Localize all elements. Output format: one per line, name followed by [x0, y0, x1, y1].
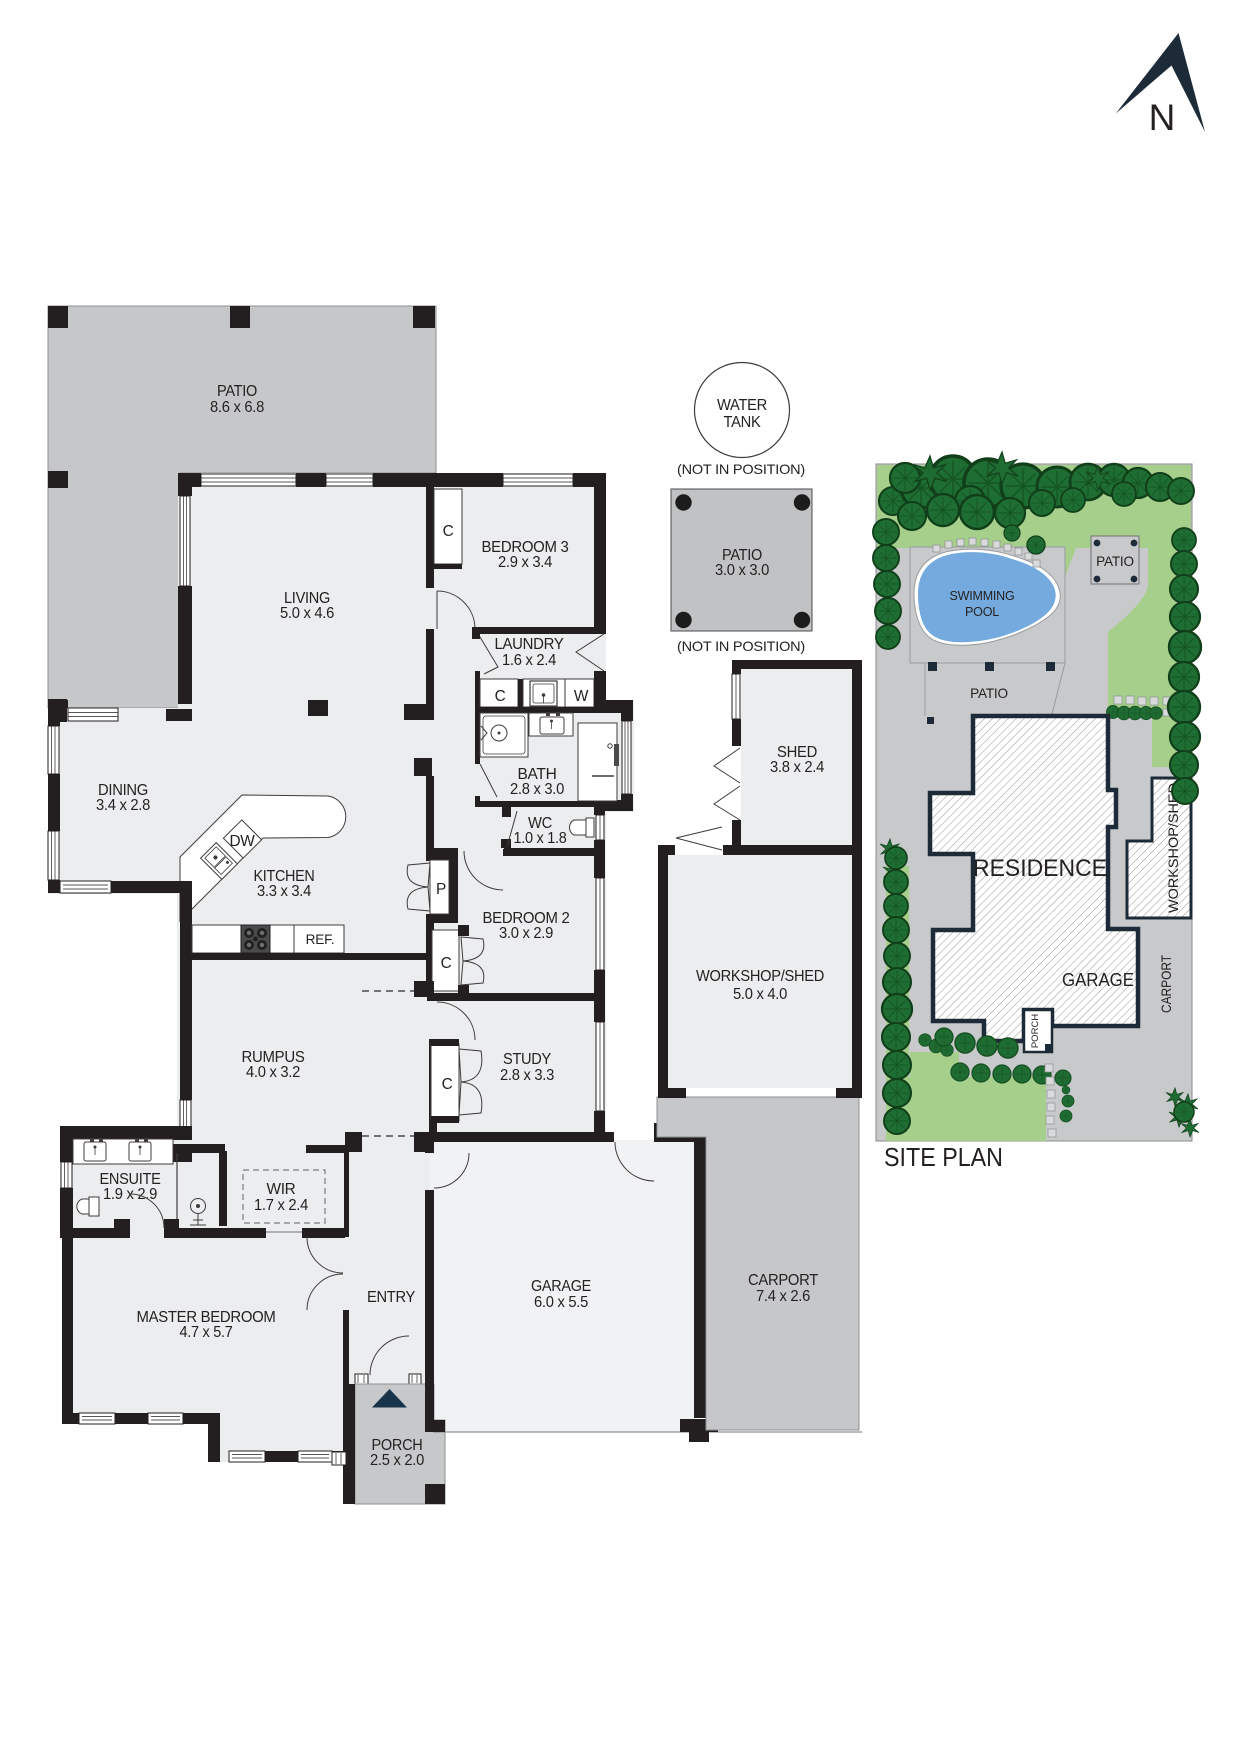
svg-text:SITE PLAN: SITE PLAN — [884, 1144, 1003, 1172]
svg-text:(NOT IN POSITION): (NOT IN POSITION) — [677, 639, 805, 654]
svg-text:PORCH: PORCH — [1030, 1014, 1041, 1048]
svg-text:8.6 x 6.8: 8.6 x 6.8 — [210, 399, 264, 416]
svg-text:CARPORT: CARPORT — [1158, 955, 1174, 1013]
svg-text:3.0 x 3.0: 3.0 x 3.0 — [715, 562, 769, 579]
svg-text:W: W — [574, 688, 589, 705]
svg-text:7.4 x 2.6: 7.4 x 2.6 — [756, 1288, 810, 1305]
svg-text:TANK: TANK — [724, 414, 762, 431]
svg-text:3.3 x 3.4: 3.3 x 3.4 — [257, 883, 312, 900]
svg-text:P: P — [436, 881, 446, 898]
svg-text:2.9 x 3.4: 2.9 x 3.4 — [498, 554, 553, 571]
svg-text:WATER: WATER — [717, 397, 767, 414]
svg-text:3.4 x 2.8: 3.4 x 2.8 — [96, 797, 150, 814]
svg-text:REF.: REF. — [306, 932, 335, 947]
svg-text:PATIO: PATIO — [217, 383, 257, 400]
svg-text:GARAGE: GARAGE — [531, 1278, 591, 1295]
svg-text:4.7 x 5.7: 4.7 x 5.7 — [180, 1324, 233, 1341]
svg-text:C: C — [442, 1076, 453, 1093]
svg-text:3.8 x 2.4: 3.8 x 2.4 — [770, 759, 825, 776]
svg-text:2.8 x 3.3: 2.8 x 3.3 — [500, 1067, 554, 1084]
svg-text:3.0 x 2.9: 3.0 x 2.9 — [499, 925, 553, 942]
svg-text:C: C — [441, 955, 452, 972]
svg-text:2.8 x 3.0: 2.8 x 3.0 — [510, 781, 564, 798]
svg-text:WIR: WIR — [267, 1181, 296, 1198]
svg-text:DW: DW — [229, 833, 255, 850]
svg-text:5.0 x 4.0: 5.0 x 4.0 — [733, 986, 787, 1003]
svg-text:PATIO: PATIO — [1096, 554, 1134, 569]
svg-text:SWIMMING: SWIMMING — [949, 589, 1014, 603]
svg-text:5.0 x 4.6: 5.0 x 4.6 — [280, 605, 334, 622]
svg-text:4.0 x 3.2: 4.0 x 3.2 — [246, 1064, 300, 1081]
svg-text:PATIO: PATIO — [970, 686, 1008, 701]
svg-text:GARAGE: GARAGE — [1062, 969, 1134, 990]
svg-text:CARPORT: CARPORT — [748, 1272, 819, 1289]
svg-text:N: N — [1149, 97, 1176, 138]
svg-text:C: C — [443, 523, 454, 540]
svg-text:2.5 x 2.0: 2.5 x 2.0 — [370, 1452, 424, 1469]
svg-text:(NOT IN POSITION): (NOT IN POSITION) — [677, 462, 805, 477]
svg-text:ENTRY: ENTRY — [367, 1289, 415, 1306]
svg-text:STUDY: STUDY — [503, 1051, 551, 1068]
svg-text:C: C — [495, 688, 506, 705]
svg-text:1.0 x 1.8: 1.0 x 1.8 — [514, 830, 567, 847]
svg-text:WORKSHOP/SHED: WORKSHOP/SHED — [696, 968, 824, 985]
svg-text:6.0 x 5.5: 6.0 x 5.5 — [534, 1294, 588, 1311]
svg-text:LAUNDRY: LAUNDRY — [495, 636, 564, 653]
svg-text:1.6 x 2.4: 1.6 x 2.4 — [502, 652, 557, 669]
svg-text:POOL: POOL — [965, 605, 999, 619]
svg-text:1.7 x 2.4: 1.7 x 2.4 — [254, 1197, 309, 1214]
svg-text:RESIDENCE: RESIDENCE — [973, 855, 1107, 882]
